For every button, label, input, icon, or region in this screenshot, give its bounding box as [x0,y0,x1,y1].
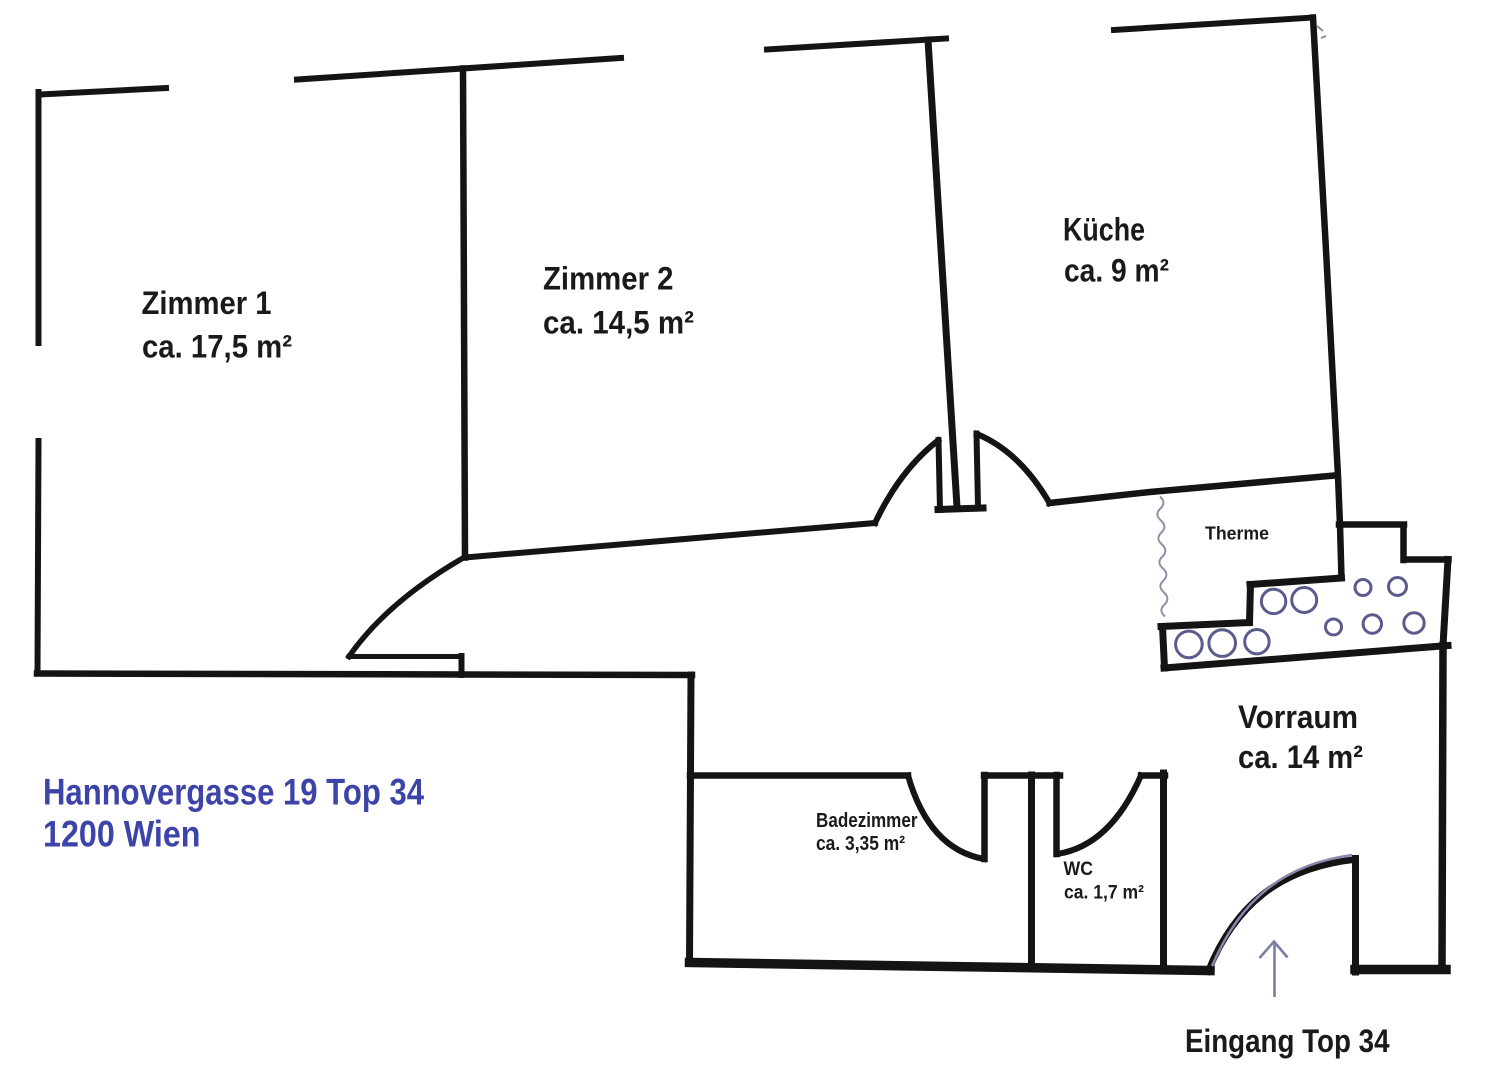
svg-text:Vorraum: Vorraum [1238,699,1358,735]
svg-text:ca. 14,5 m²: ca. 14,5 m² [543,305,694,341]
svg-text:ca. 9 m²: ca. 9 m² [1064,253,1169,289]
svg-text:Hannovergasse 19 Top 34: Hannovergasse 19 Top 34 [43,772,424,813]
svg-text:ca. 14 m²: ca. 14 m² [1238,739,1363,775]
svg-text:Badezimmer: Badezimmer [816,809,918,832]
svg-text:Eingang Top 34: Eingang Top 34 [1185,1023,1390,1059]
svg-text:Therme: Therme [1205,524,1269,544]
svg-text:Küche: Küche [1063,212,1145,248]
svg-text:WC: WC [1064,859,1094,880]
svg-text:ca. 1,7 m²: ca. 1,7 m² [1064,883,1144,904]
svg-text:ca. 17,5 m²: ca. 17,5 m² [142,329,292,365]
svg-text:1200 Wien: 1200 Wien [43,814,201,855]
svg-text:ca. 3,35 m²: ca. 3,35 m² [816,832,905,855]
svg-text:Zimmer 2: Zimmer 2 [543,261,674,297]
svg-text:Zimmer 1: Zimmer 1 [142,285,272,321]
